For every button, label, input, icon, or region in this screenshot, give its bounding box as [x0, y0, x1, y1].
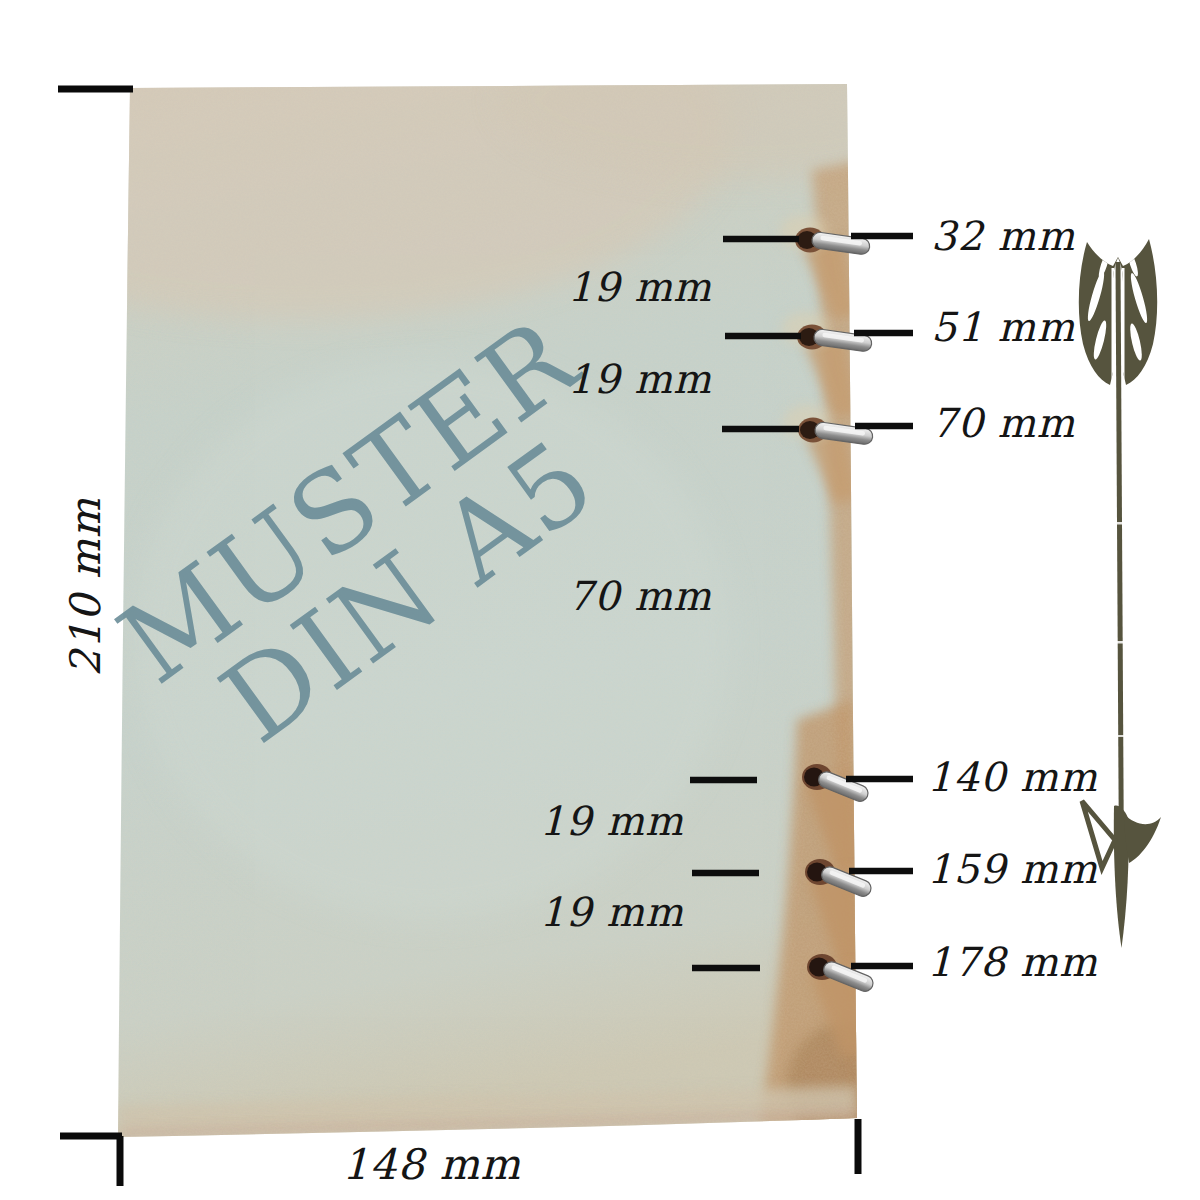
- hole-distance-label: 140 mm: [927, 757, 1098, 797]
- hole-spacing-label: 19 mm: [568, 267, 712, 307]
- hole-spacing-label: 19 mm: [540, 801, 684, 841]
- hole-spacing-label: 70 mm: [568, 576, 712, 616]
- hole-distance-label: 159 mm: [927, 849, 1098, 889]
- width-dimension-label: 148 mm: [342, 1144, 521, 1186]
- hole-distance-label: 178 mm: [927, 942, 1098, 982]
- arrow-down-icon: [1079, 239, 1161, 948]
- hole-distance-label: 51 mm: [931, 307, 1075, 347]
- hole-spacing-label: 19 mm: [568, 359, 712, 399]
- diagram-stage: MUSTER DIN A5 210 mm 148 mm 32 mm 51 mm …: [0, 0, 1200, 1200]
- hole-distance-label: 32 mm: [931, 216, 1075, 256]
- hole-spacing-label: 19 mm: [540, 892, 684, 932]
- hole-distance-label: 70 mm: [931, 403, 1075, 443]
- height-dimension-label: 210 mm: [65, 485, 107, 689]
